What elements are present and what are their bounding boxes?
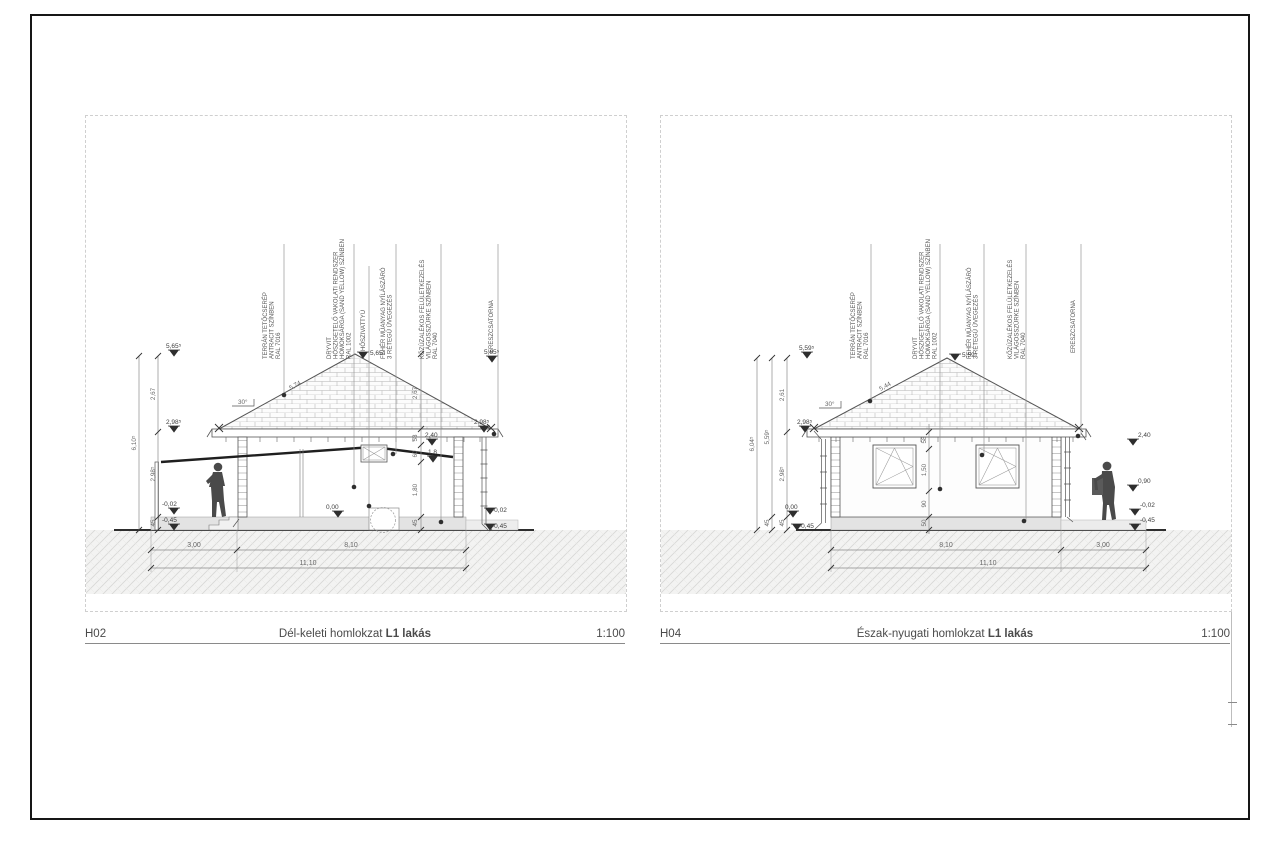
svg-text:HOMOKSÁRGA (SAND YELLOW) SZÍNB: HOMOKSÁRGA (SAND YELLOW) SZÍNBEN bbox=[339, 239, 346, 359]
svg-text:HOMOKSÁRGA (SAND YELLOW) SZÍNB: HOMOKSÁRGA (SAND YELLOW) SZÍNBEN bbox=[925, 239, 932, 359]
elevation-panel-h02: 6,10⁵ 2,67 2,98⁵ 45 5,65⁵ 2,98⁵ -0,02 -0… bbox=[85, 115, 627, 612]
level-ridge: 5,59⁵ bbox=[799, 345, 815, 352]
elevation-panel-h04: 6,04⁵ 5,59⁵ 45 2,61 2,98⁵ 45 5,59⁵ 2,98⁵… bbox=[660, 115, 1232, 612]
level-eaves: 2,98⁵ bbox=[166, 419, 182, 426]
downpipe-left bbox=[814, 431, 827, 529]
annotation-plaster: DRYVIT bbox=[327, 337, 333, 359]
annotation-heat-pump: HŐSZIVATTYÚ bbox=[360, 310, 367, 351]
svg-text:3 RÉTEGŰ ÜVEGEZÉS: 3 RÉTEGŰ ÜVEGEZÉS bbox=[973, 295, 980, 359]
level-lintel: 2,40 bbox=[425, 432, 438, 439]
small-window bbox=[361, 445, 387, 462]
corner-pillar-left bbox=[238, 437, 247, 517]
vertical-dimension-overall: 6,10⁵ bbox=[131, 353, 142, 533]
svg-text:HŐSZIGETELŐ VAKOLATI RENDSZER: HŐSZIGETELŐ VAKOLATI RENDSZER bbox=[333, 251, 340, 359]
person-figure bbox=[1092, 462, 1116, 520]
dim-total-width: 11,10 bbox=[980, 560, 997, 567]
level-ridge: 5,65⁵ bbox=[166, 343, 182, 350]
annotation-roof-tile: TERRÁN TETŐCSERÉP bbox=[850, 292, 857, 359]
level-eaves-right: 2,98⁵ bbox=[474, 419, 490, 426]
level-minus02-right: -0,02 bbox=[492, 507, 507, 514]
svg-text:RAL 7016: RAL 7016 bbox=[276, 332, 282, 359]
level-minus02: -0,02 bbox=[162, 501, 177, 508]
dim-plinth2: 45 bbox=[764, 519, 771, 527]
annotation-plaster: DRYVIT bbox=[913, 337, 919, 359]
ground-hatch bbox=[86, 530, 626, 594]
dim-wall-height: 2,98⁵ bbox=[150, 466, 157, 481]
person-figure bbox=[206, 463, 226, 517]
slope-value: 30° bbox=[825, 400, 835, 408]
corner-pillar-left bbox=[831, 437, 840, 517]
vertical-dimension-overall: 6,04⁵ bbox=[749, 355, 760, 533]
level-eaves: 2,98⁵ bbox=[797, 419, 813, 426]
dim-terrace-width: 3,00 bbox=[1096, 542, 1110, 549]
fascia-board bbox=[807, 429, 1086, 437]
svg-text:3 RÉTEGŰ ÜVEGEZÉS: 3 RÉTEGŰ ÜVEGEZÉS bbox=[387, 295, 394, 359]
annotation-plinth: KŐZÚZALÉKOS FELÜLETKEZELÉS bbox=[1007, 260, 1014, 359]
chain-parapet: 90 bbox=[921, 500, 928, 508]
dim-house-width: 8,10 bbox=[939, 542, 953, 549]
roof-slope-symbol: 30° bbox=[819, 400, 841, 408]
chain-window: 1,50 bbox=[921, 463, 928, 476]
drawing-scale: 1:100 bbox=[535, 628, 625, 640]
drawing-sheet: 6,10⁵ 2,67 2,98⁵ 45 5,65⁵ 2,98⁵ -0,02 -0… bbox=[0, 0, 1280, 844]
drawing-scale: 1:100 bbox=[1140, 628, 1230, 640]
dim-house-width: 8,10 bbox=[344, 542, 358, 549]
level-minus45: -0,45 bbox=[162, 517, 177, 524]
slope-value: 30° bbox=[238, 398, 248, 406]
svg-text:VILÁGOSSZÜRKE SZÍNBEN: VILÁGOSSZÜRKE SZÍNBEN bbox=[426, 281, 433, 359]
window-1 bbox=[873, 445, 916, 488]
roof bbox=[219, 354, 491, 429]
chain-plinth: 50 bbox=[921, 519, 928, 527]
annotation-window: FEHÉR MŰANYAG NYÍLÁSZÁRÓ bbox=[966, 267, 973, 359]
dim-overall-height: 6,04⁵ bbox=[749, 436, 756, 451]
downpipe-right bbox=[481, 437, 493, 530]
dim-roof-height: 2,67 bbox=[150, 387, 157, 400]
window-2 bbox=[976, 445, 1019, 488]
roof bbox=[814, 358, 1079, 429]
chain-lintel: 58 bbox=[412, 434, 419, 442]
chain-roof: 2,67 bbox=[412, 386, 419, 399]
dim-total-width: 11,10 bbox=[300, 560, 317, 567]
chain-sill: 1,80 bbox=[412, 483, 419, 496]
svg-text:RAL 1002: RAL 1002 bbox=[933, 332, 939, 359]
svg-text:ANTRACIT SZÍNBEN: ANTRACIT SZÍNBEN bbox=[269, 301, 276, 359]
svg-text:HŐSZIGETELŐ VAKOLATI RENDSZER: HŐSZIGETELŐ VAKOLATI RENDSZER bbox=[919, 251, 926, 359]
elevation-drawing-h02: 6,10⁵ 2,67 2,98⁵ 45 5,65⁵ 2,98⁵ -0,02 -0… bbox=[86, 116, 626, 611]
annotation-gutter: ERESZCSATORNA bbox=[1071, 300, 1077, 353]
annotation-window: FEHÉR MŰANYAG NYÍLÁSZÁRÓ bbox=[380, 267, 387, 359]
level-lintel: 2,40 bbox=[1138, 432, 1151, 439]
vertical-dimension-chain-inner: 2,67 58 60 1,80 45 bbox=[412, 351, 424, 533]
title-block-h02: H02 Dél-keleti homlokzat L1 lakás 1:100 bbox=[85, 628, 625, 644]
dim-roof-height: 2,61 bbox=[779, 388, 786, 401]
dim-overall-height: 6,10⁵ bbox=[131, 435, 138, 450]
level-marker-sill bbox=[427, 456, 439, 462]
rafter-ticks bbox=[226, 437, 480, 442]
sheet-edge-tick bbox=[1228, 724, 1237, 725]
interior-post bbox=[300, 449, 303, 517]
drawing-code: H02 bbox=[85, 628, 175, 640]
level-zero: 0,00 bbox=[785, 504, 798, 511]
material-annotations: TERRÁN TETŐCSERÉP ANTRACIT SZÍNBEN RAL 7… bbox=[262, 239, 495, 359]
fascia-board bbox=[212, 429, 498, 437]
dim-porch-width: 3,00 bbox=[187, 542, 201, 549]
drawing-title: Észak-nyugati homlokzat L1 lakás bbox=[750, 628, 1140, 640]
svg-text:RAL 7040: RAL 7040 bbox=[433, 332, 439, 359]
ground-hatch bbox=[661, 530, 1231, 594]
elevation-drawing-h04: 6,04⁵ 5,59⁵ 45 2,61 2,98⁵ 45 5,59⁵ 2,98⁵… bbox=[661, 116, 1231, 611]
drawing-title-suffix: L1 lakás bbox=[988, 628, 1033, 640]
downpipe-right bbox=[1064, 437, 1073, 522]
dim-plinth-height: 45 bbox=[779, 519, 786, 527]
corner-pillar-right bbox=[454, 437, 463, 517]
drawing-title-text: Dél-keleti homlokzat bbox=[279, 628, 383, 640]
sheet-edge-tick bbox=[1228, 702, 1237, 703]
canopy-beam bbox=[161, 447, 453, 462]
level-minus02: -0,02 bbox=[1140, 502, 1155, 509]
sheet-edge-line bbox=[1231, 610, 1232, 727]
drawing-title-suffix: L1 lakás bbox=[386, 628, 431, 640]
vertical-dimension-second: 5,59⁵ 45 bbox=[764, 355, 775, 533]
chain-lintel: 58 bbox=[921, 436, 928, 444]
dim-plinth-height: 45 bbox=[150, 519, 157, 527]
level-sill: 1,8 bbox=[428, 449, 437, 456]
svg-text:ANTRACIT SZÍNBEN: ANTRACIT SZÍNBEN bbox=[857, 301, 864, 359]
annotation-plinth: KŐZÚZALÉKOS FELÜLETKEZELÉS bbox=[419, 260, 426, 359]
dim-second-height: 5,59⁵ bbox=[764, 429, 771, 444]
corner-pillar-right bbox=[1052, 437, 1061, 517]
svg-text:RAL 1002: RAL 1002 bbox=[347, 332, 353, 359]
level-sill: 0,90 bbox=[1138, 478, 1151, 485]
title-block-h04: H04 Észak-nyugati homlokzat L1 lakás 1:1… bbox=[660, 628, 1230, 644]
heat-pump-unit bbox=[369, 508, 399, 533]
level-minus45: -0,45 bbox=[799, 523, 814, 530]
level-minus45-right: -0,45 bbox=[1140, 517, 1155, 524]
level-markers-left: 5,59⁵ 2,98⁵ 0,00 -0,45 bbox=[785, 345, 815, 530]
drawing-title: Dél-keleti homlokzat L1 lakás bbox=[175, 628, 535, 640]
dim-wall-height: 2,98⁵ bbox=[779, 466, 786, 481]
roof-slope-symbol: 30° bbox=[232, 398, 254, 406]
level-zero: 0,00 bbox=[326, 504, 339, 511]
level-marker-lintel bbox=[426, 439, 438, 445]
level-minus45-right: -0,45 bbox=[492, 523, 507, 530]
level-marker-zero bbox=[332, 511, 344, 517]
drawing-code: H04 bbox=[660, 628, 750, 640]
svg-text:VILÁGOSSZÜRKE SZÍNBEN: VILÁGOSSZÜRKE SZÍNBEN bbox=[1014, 281, 1021, 359]
annotation-roof-tile: TERRÁN TETŐCSERÉP bbox=[262, 292, 269, 359]
plinth-band bbox=[831, 517, 1061, 530]
level-markers-left: 5,65⁵ 2,98⁵ -0,02 -0,45 bbox=[162, 343, 182, 530]
level-markers-right: 5,65⁵ 2,98⁵ -0,02 -0,45 bbox=[474, 349, 507, 530]
facade-wall bbox=[831, 437, 1061, 517]
chain-plinth: 45 bbox=[412, 519, 419, 527]
annotation-gutter: ERESZCSATORNA bbox=[489, 300, 495, 353]
drawing-title-text: Észak-nyugati homlokzat bbox=[857, 628, 985, 640]
level-marker-apex bbox=[949, 354, 961, 360]
level-markers-right: 2,40 0,90 -0,02 -0,45 bbox=[1127, 432, 1155, 530]
svg-text:RAL 7016: RAL 7016 bbox=[864, 332, 870, 359]
svg-text:RAL 7040: RAL 7040 bbox=[1021, 332, 1027, 359]
chain-window: 60 bbox=[412, 450, 419, 458]
material-annotations: TERRÁN TETŐCSERÉP ANTRACIT SZÍNBEN RAL 7… bbox=[850, 239, 1077, 359]
